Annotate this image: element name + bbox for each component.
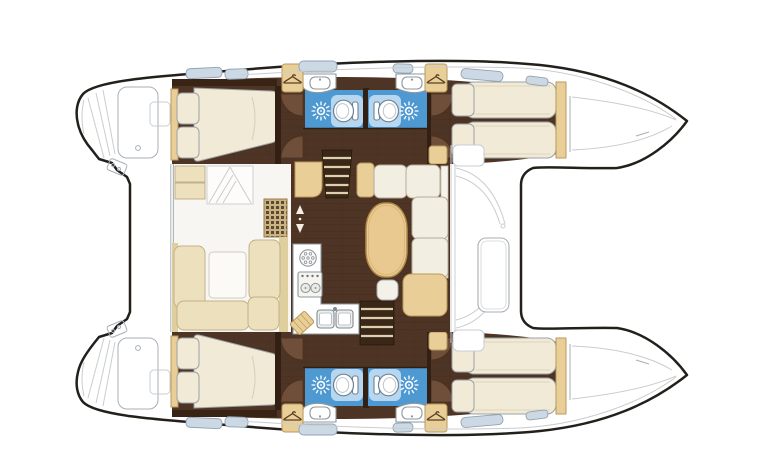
step-seat	[453, 330, 484, 351]
catamaran-floorplan-svg	[0, 0, 769, 450]
sofa-chaise	[403, 274, 447, 316]
locker	[175, 183, 205, 199]
floorplan-page	[0, 0, 769, 450]
stove-icon	[298, 272, 322, 297]
step-seat	[453, 145, 484, 166]
galley-cabinet	[295, 162, 322, 197]
round-burner-icon	[300, 250, 316, 266]
starboard-companionway-stairs	[360, 301, 394, 345]
settee-cushion	[249, 240, 280, 300]
port-companionway-stairs	[322, 150, 352, 198]
locker	[175, 166, 205, 182]
shelf-unit	[207, 166, 253, 204]
settee-cushion	[248, 297, 279, 330]
sofa-cushion	[412, 238, 448, 278]
settee-table	[209, 252, 246, 298]
settee-cushion	[174, 246, 205, 308]
sofa-cushion	[406, 165, 440, 198]
sofa-cushion	[412, 197, 448, 239]
stool	[377, 280, 398, 300]
sofa-cushion	[374, 165, 407, 198]
saloon	[171, 150, 450, 345]
sofa-armrest	[357, 163, 374, 197]
grid-mat	[264, 199, 287, 237]
settee-cushion	[177, 301, 249, 330]
deck-hatch	[478, 238, 509, 312]
